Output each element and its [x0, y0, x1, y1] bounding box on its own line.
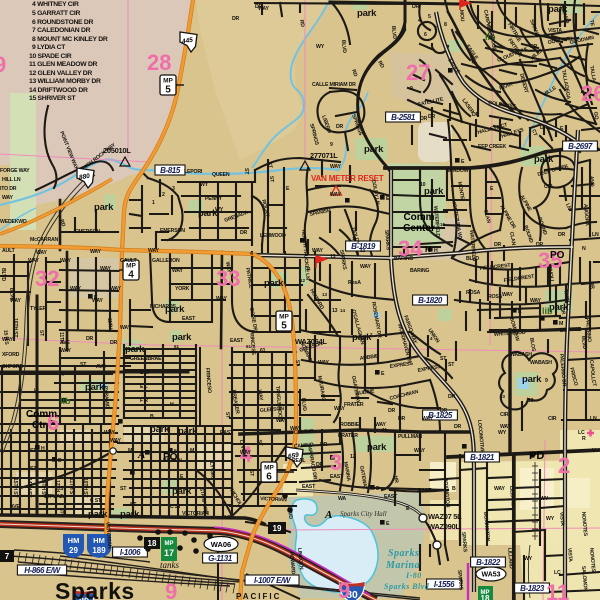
- svg-text:61: 61: [246, 344, 252, 349]
- svg-text:Center: Center: [403, 223, 435, 234]
- svg-text:M: M: [190, 448, 194, 454]
- svg-text:5 GARRATT CIR: 5 GARRATT CIR: [32, 10, 80, 17]
- svg-text:11 GLEN MEADOW DR: 11 GLEN MEADOW DR: [29, 61, 98, 68]
- svg-text:18: 18: [481, 594, 490, 600]
- svg-text:9: 9: [330, 142, 333, 148]
- svg-text:WAY: WAY: [502, 292, 513, 298]
- svg-text:WAY: WAY: [330, 192, 341, 198]
- svg-text:CALLE MIRIAM DR: CALLE MIRIAM DR: [312, 82, 356, 88]
- svg-text:WAZ07 5L: WAZ07 5L: [428, 512, 462, 521]
- svg-text:RosA: RosA: [348, 280, 361, 286]
- svg-text:Marina: Marina: [385, 560, 420, 571]
- svg-text:H: H: [170, 402, 174, 408]
- svg-text:10: 10: [500, 394, 506, 399]
- svg-text:DR: DR: [232, 16, 240, 22]
- svg-text:AVE: AVE: [60, 340, 70, 346]
- svg-text:DR: DR: [320, 442, 328, 448]
- svg-text:ROSA: ROSA: [488, 294, 503, 300]
- svg-text:CIR: CIR: [544, 184, 553, 190]
- svg-text:DR: DR: [428, 114, 436, 120]
- svg-text:13: 13: [322, 292, 328, 297]
- svg-text:EAST: EAST: [384, 494, 398, 500]
- svg-text:YORK: YORK: [175, 286, 190, 292]
- svg-text:16TH ST: 16TH ST: [12, 318, 18, 338]
- svg-text:8 MOUNT MC KINLEY DR: 8 MOUNT MC KINLEY DR: [32, 36, 108, 43]
- svg-text:WY: WY: [215, 207, 224, 213]
- svg-text:ST: ST: [44, 494, 51, 500]
- svg-text:EAST: EAST: [302, 484, 316, 490]
- svg-text:OXFORD: OXFORD: [2, 364, 23, 370]
- svg-text:32: 32: [35, 266, 59, 291]
- svg-text:WY: WY: [546, 516, 555, 522]
- svg-text:29: 29: [69, 546, 78, 555]
- svg-text:4: 4: [250, 251, 253, 257]
- svg-text:DR: DR: [420, 116, 428, 122]
- svg-text:WAY: WAY: [216, 296, 227, 302]
- svg-text:DR: DR: [86, 336, 94, 342]
- svg-text:189: 189: [92, 546, 106, 555]
- svg-text:19: 19: [273, 524, 282, 533]
- svg-text:DR: DR: [454, 424, 462, 430]
- svg-text:LEPORI: LEPORI: [184, 169, 203, 175]
- svg-text:12: 12: [360, 248, 366, 253]
- svg-text:park: park: [178, 426, 198, 437]
- svg-text:WAY: WAY: [104, 430, 115, 436]
- svg-text:EAST: EAST: [182, 316, 196, 322]
- svg-text:DR: DR: [536, 242, 544, 248]
- svg-text:WAY: WAY: [334, 406, 345, 412]
- svg-text:28: 28: [147, 50, 171, 75]
- svg-text:WAY: WAY: [422, 416, 433, 422]
- svg-text:VISTA: VISTA: [566, 548, 573, 563]
- svg-text:12: 12: [300, 278, 306, 283]
- svg-text:B-815: B-815: [160, 166, 181, 175]
- svg-text:park: park: [172, 486, 192, 497]
- svg-text:RICHARDS: RICHARDS: [150, 304, 177, 310]
- svg-text:BLVD: BLVD: [390, 26, 397, 40]
- svg-text:7: 7: [434, 26, 437, 32]
- svg-text:park: park: [357, 8, 377, 19]
- svg-text:BLVD: BLVD: [286, 506, 293, 520]
- svg-text:WAY: WAY: [276, 418, 287, 424]
- svg-text:AULT: AULT: [2, 248, 16, 254]
- svg-text:DR: DR: [316, 462, 324, 468]
- svg-text:SHADOW: SHADOW: [446, 168, 469, 174]
- svg-text:WAZ090L: WAZ090L: [428, 522, 460, 531]
- svg-text:27: 27: [406, 60, 430, 85]
- svg-text:277071L: 277071L: [310, 151, 338, 160]
- svg-text:park: park: [424, 186, 444, 197]
- svg-text:GALLERON: GALLERON: [152, 258, 180, 264]
- svg-text:10 SPADE CIR: 10 SPADE CIR: [29, 53, 72, 60]
- svg-text:WEDEKWD: WEDEKWD: [0, 219, 27, 225]
- svg-text:PACIFIC: PACIFIC: [236, 592, 281, 600]
- svg-text:WAY: WAY: [28, 258, 39, 264]
- svg-text:EMERSON: EMERSON: [75, 229, 100, 235]
- svg-text:WAY: WAY: [110, 286, 121, 292]
- svg-text:H-866 E/W: H-866 E/W: [24, 566, 61, 575]
- svg-text:4 WHITNEY CIR: 4 WHITNEY CIR: [32, 1, 79, 8]
- svg-text:WAY: WAY: [148, 248, 159, 254]
- svg-text:Comm: Comm: [26, 409, 57, 420]
- svg-text:park: park: [264, 278, 284, 289]
- svg-text:13 WILLIAM MORBY DR: 13 WILLIAM MORBY DR: [29, 78, 101, 85]
- svg-text:ST: ST: [80, 362, 87, 368]
- svg-text:WAY: WAY: [92, 298, 103, 304]
- svg-text:WAY: WAY: [494, 486, 505, 492]
- svg-text:HILL LN: HILL LN: [2, 177, 21, 183]
- svg-text:HM: HM: [68, 536, 80, 545]
- svg-text:13: 13: [332, 308, 338, 314]
- svg-text:9: 9: [338, 578, 350, 600]
- svg-text:S7: S7: [30, 466, 36, 472]
- svg-text:6: 6: [424, 32, 427, 38]
- svg-text:WAY: WAY: [2, 195, 13, 201]
- svg-text:lib: lib: [542, 306, 553, 316]
- svg-text:B: B: [452, 486, 456, 492]
- svg-text:VICTORIAN: VICTORIAN: [182, 511, 209, 517]
- svg-text:11TH: 11TH: [106, 318, 113, 331]
- svg-text:tanks: tanks: [160, 560, 179, 570]
- svg-text:DR: DR: [472, 112, 480, 118]
- svg-text:WAY: WAY: [312, 248, 323, 254]
- svg-text:WAY: WAY: [258, 6, 269, 12]
- svg-text:Sparks: Sparks: [55, 578, 135, 600]
- svg-text:10: 10: [528, 398, 534, 404]
- svg-text:M: M: [559, 321, 563, 327]
- svg-text:4: 4: [418, 18, 421, 24]
- svg-text:2: 2: [162, 192, 165, 198]
- svg-text:14: 14: [340, 308, 346, 313]
- svg-text:H: H: [41, 446, 45, 452]
- svg-text:B-1823: B-1823: [520, 584, 545, 593]
- svg-text:BLVD: BLVD: [300, 398, 307, 412]
- svg-text:GREENBRAE: GREENBRAE: [130, 356, 162, 362]
- svg-text:LINCOLN: LINCOLN: [160, 458, 182, 464]
- svg-text:park: park: [120, 509, 140, 520]
- svg-text:WAY: WAY: [530, 298, 541, 304]
- svg-text:ST: ST: [440, 356, 447, 362]
- svg-text:Sparks: Sparks: [388, 548, 419, 559]
- svg-text:WAY: WAY: [172, 268, 183, 274]
- svg-text:WY: WY: [524, 556, 533, 562]
- svg-text:H: H: [425, 245, 431, 254]
- svg-text:WABASH: WABASH: [510, 352, 532, 358]
- svg-text:XFORD: XFORD: [2, 352, 20, 358]
- svg-text:LN: LN: [590, 416, 597, 422]
- svg-text:BLVD: BLVD: [8, 288, 15, 302]
- svg-text:DR: DR: [540, 125, 548, 131]
- svg-text:ROSA: ROSA: [466, 290, 481, 296]
- svg-text:5: 5: [165, 85, 171, 96]
- svg-text:11: 11: [546, 580, 569, 600]
- svg-text:WAY: WAY: [240, 450, 251, 456]
- svg-text:WAY: WAY: [110, 438, 121, 444]
- svg-text:12: 12: [350, 454, 356, 460]
- svg-text:A: A: [324, 509, 332, 521]
- svg-text:9: 9: [0, 52, 6, 77]
- svg-text:TYLER: TYLER: [30, 306, 46, 312]
- svg-text:13: 13: [330, 254, 336, 260]
- svg-text:B: B: [150, 414, 154, 420]
- svg-text:park: park: [150, 424, 170, 435]
- svg-text:ST: ST: [30, 448, 37, 454]
- svg-text:6: 6: [266, 472, 272, 483]
- svg-text:EAST: EAST: [230, 338, 244, 344]
- svg-text:E M: E M: [140, 370, 149, 376]
- svg-text:PULLMAN: PULLMAN: [398, 434, 422, 440]
- svg-text:Ctr: Ctr: [32, 420, 47, 431]
- svg-text:5: 5: [428, 14, 431, 20]
- svg-text:WAY: WAY: [100, 266, 111, 272]
- svg-text:11: 11: [382, 428, 387, 434]
- svg-text:PD: PD: [529, 450, 544, 462]
- svg-text:park: park: [364, 144, 384, 155]
- svg-text:26: 26: [581, 81, 600, 106]
- svg-text:3: 3: [330, 450, 342, 475]
- svg-text:WY: WY: [540, 496, 549, 502]
- svg-text:8: 8: [444, 22, 447, 28]
- svg-text:CIR: CIR: [500, 412, 509, 418]
- svg-text:LN: LN: [592, 232, 599, 238]
- svg-text:park: park: [522, 374, 542, 385]
- svg-text:N: N: [582, 246, 586, 252]
- svg-text:7 CALEDONIAN DR: 7 CALEDONIAN DR: [32, 27, 91, 34]
- svg-text:LC: LC: [554, 570, 561, 576]
- svg-text:DR: DR: [240, 230, 248, 236]
- svg-text:EAST: EAST: [220, 430, 234, 436]
- svg-text:14TH ST: 14TH ST: [26, 478, 32, 498]
- svg-text:WAY: WAY: [330, 164, 341, 170]
- svg-text:PRATER: PRATER: [338, 433, 358, 439]
- svg-text:R: R: [582, 436, 586, 442]
- svg-text:4: 4: [128, 270, 134, 281]
- svg-text:WAY: WAY: [70, 286, 81, 292]
- svg-text:12TH: 12TH: [54, 480, 60, 492]
- svg-text:MP: MP: [165, 541, 174, 547]
- svg-text:REAL: REAL: [292, 458, 306, 464]
- svg-text:park: park: [125, 344, 145, 355]
- svg-text:HM: HM: [93, 536, 105, 545]
- svg-text:WAY: WAY: [90, 249, 101, 255]
- svg-text:PENNY: PENNY: [205, 196, 223, 202]
- svg-text:15 SHRIVER ST: 15 SHRIVER ST: [29, 95, 76, 102]
- svg-text:I-1006: I-1006: [120, 548, 141, 557]
- svg-text:DR: DR: [448, 394, 456, 400]
- svg-text:11: 11: [352, 236, 357, 241]
- svg-text:WABASH: WABASH: [530, 360, 552, 366]
- svg-text:EMERSON: EMERSON: [160, 228, 185, 234]
- svg-text:2: 2: [558, 453, 570, 478]
- svg-text:WAY: WAY: [360, 264, 371, 270]
- svg-text:ITO DR: ITO DR: [0, 186, 17, 192]
- svg-text:17: 17: [164, 548, 174, 558]
- svg-text:Sparks Blvd: Sparks Blvd: [384, 582, 430, 591]
- svg-text:WA06: WA06: [211, 540, 231, 549]
- svg-text:lib: lib: [60, 396, 71, 406]
- svg-text:DR: DR: [412, 4, 420, 10]
- svg-text:WAY: WAY: [36, 250, 47, 256]
- svg-text:9: 9: [165, 579, 177, 600]
- svg-text:1: 1: [152, 200, 155, 206]
- svg-text:EEP CREEK: EEP CREEK: [478, 144, 507, 150]
- svg-text:park: park: [534, 154, 554, 165]
- svg-text:AND: AND: [588, 176, 595, 188]
- svg-text:15TH ST: 15TH ST: [12, 478, 18, 498]
- svg-text:BLVD: BLVD: [0, 268, 6, 281]
- svg-text:park: park: [172, 332, 192, 343]
- svg-text:DR: DR: [388, 408, 396, 414]
- svg-text:FORGE WAY: FORGE WAY: [0, 168, 30, 174]
- svg-text:FRATER: FRATER: [344, 402, 364, 408]
- svg-text:F R: F R: [140, 398, 148, 404]
- svg-text:ST: ST: [243, 168, 249, 175]
- svg-text:B-1820: B-1820: [418, 296, 443, 305]
- svg-text:MP: MP: [279, 314, 289, 321]
- svg-text:B-1822: B-1822: [476, 558, 501, 567]
- svg-text:DR: DR: [494, 242, 502, 248]
- svg-text:CIR: CIR: [548, 416, 557, 422]
- svg-text:10TH ST: 10TH ST: [82, 478, 88, 498]
- svg-text:BLVD: BLVD: [466, 256, 479, 262]
- svg-text:McCARRAN: McCARRAN: [30, 237, 59, 243]
- svg-text:WY: WY: [316, 44, 325, 50]
- svg-text:BLVD: BLVD: [340, 40, 347, 54]
- svg-text:AVE: AVE: [96, 364, 106, 370]
- svg-text:MOU: MOU: [458, 10, 465, 22]
- svg-text:9: 9: [545, 378, 548, 384]
- svg-text:WAY: WAY: [60, 348, 71, 354]
- svg-text:H: H: [434, 248, 438, 254]
- svg-text:6 ROUNDSTONE DR: 6 ROUNDSTONE DR: [32, 19, 93, 26]
- svg-text:A: A: [137, 449, 145, 461]
- svg-text:PO: PO: [550, 250, 565, 261]
- svg-text:10: 10: [440, 222, 446, 227]
- svg-text:ST: ST: [448, 362, 455, 368]
- svg-text:E L: E L: [140, 384, 149, 390]
- svg-text:B-2697: B-2697: [568, 142, 593, 151]
- svg-text:MP: MP: [163, 78, 173, 85]
- svg-text:B-1821: B-1821: [470, 453, 495, 462]
- svg-text:WA: WA: [338, 496, 346, 502]
- svg-text:GAULT: GAULT: [120, 258, 138, 264]
- svg-text:I-1007 E/W: I-1007 E/W: [254, 576, 292, 585]
- svg-text:I-80: I-80: [405, 571, 422, 580]
- svg-text:DR: DR: [560, 328, 568, 334]
- svg-text:C ST: C ST: [90, 498, 102, 504]
- svg-text:DR: DR: [336, 124, 344, 130]
- svg-text:WAY: WAY: [120, 325, 131, 331]
- svg-text:park: park: [94, 202, 114, 213]
- svg-text:M: M: [128, 448, 132, 454]
- svg-text:DR: DR: [398, 416, 406, 422]
- svg-text:WY: WY: [498, 430, 507, 436]
- svg-text:LENWOOD: LENWOOD: [260, 233, 286, 239]
- svg-text:8TH: 8TH: [58, 508, 65, 518]
- svg-text:VISTA: VISTA: [558, 512, 565, 527]
- svg-text:3: 3: [172, 186, 175, 192]
- svg-text:C ST: C ST: [170, 504, 182, 510]
- svg-text:ST: ST: [130, 502, 137, 508]
- svg-text:WY: WY: [200, 182, 209, 188]
- svg-text:MP: MP: [264, 465, 274, 472]
- svg-text:DR: DR: [558, 232, 566, 238]
- svg-text:DR: DR: [440, 408, 448, 414]
- svg-text:PLAZA: PLAZA: [50, 494, 67, 500]
- svg-text:WAY: WAY: [414, 448, 425, 454]
- svg-text:7: 7: [5, 552, 10, 561]
- svg-text:G-1131: G-1131: [208, 554, 233, 563]
- svg-text:ST: ST: [60, 486, 67, 492]
- svg-text:Comm: Comm: [403, 212, 434, 223]
- svg-text:WAY: WAY: [60, 258, 71, 264]
- svg-text:EAST: EAST: [330, 474, 344, 480]
- svg-text:11TH ST: 11TH ST: [68, 478, 74, 498]
- svg-text:BARiNG: BARiNG: [410, 268, 429, 274]
- svg-text:AVE: AVE: [222, 515, 232, 521]
- svg-text:5: 5: [281, 321, 287, 332]
- svg-text:H: H: [60, 372, 64, 378]
- svg-text:B-2581: B-2581: [391, 113, 416, 122]
- svg-text:park: park: [367, 442, 387, 453]
- svg-text:12 GLEN VALLEY DR: 12 GLEN VALLEY DR: [29, 70, 92, 77]
- svg-text:11: 11: [306, 266, 311, 271]
- svg-text:WA53: WA53: [481, 572, 500, 579]
- svg-text:10: 10: [420, 182, 426, 188]
- svg-text:I-1556: I-1556: [434, 580, 455, 589]
- svg-text:park: park: [88, 509, 108, 520]
- svg-text:WAY: WAY: [318, 360, 329, 366]
- svg-text:DR: DR: [110, 340, 118, 346]
- svg-text:AVE: AVE: [10, 504, 20, 510]
- svg-text:QUEEN: QUEEN: [212, 172, 230, 178]
- svg-text:ROBBIE: ROBBIE: [340, 422, 360, 428]
- svg-text:9: 9: [410, 86, 413, 92]
- svg-text:9 LYDIA CT: 9 LYDIA CT: [32, 44, 66, 51]
- svg-text:61: 61: [260, 348, 266, 354]
- svg-text:Sparks City Hall: Sparks City Hall: [340, 510, 387, 518]
- svg-text:EAST: EAST: [418, 488, 432, 494]
- svg-text:DR: DR: [530, 44, 538, 50]
- svg-text:61: 61: [174, 344, 180, 349]
- svg-text:VISTA: VISTA: [548, 28, 562, 34]
- svg-text:ST: ST: [120, 486, 127, 492]
- svg-text:BARiNG: BARiNG: [394, 256, 413, 262]
- svg-text:14 DRIFTWOOD DR: 14 DRIFTWOOD DR: [29, 87, 88, 94]
